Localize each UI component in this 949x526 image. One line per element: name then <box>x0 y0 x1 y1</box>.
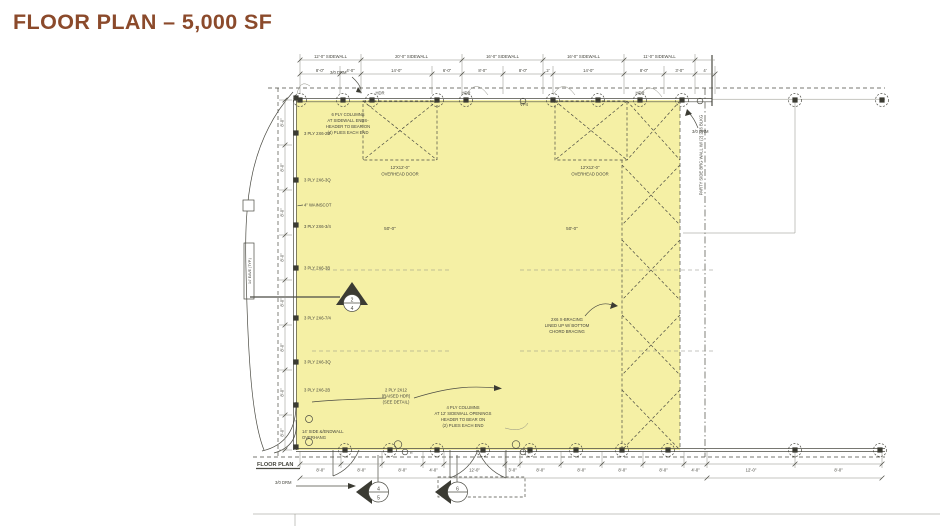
door-right-leader <box>689 113 698 128</box>
note-line: CHORD BRACING <box>549 329 585 334</box>
note-line: (RAISED HDR) <box>382 394 411 399</box>
callout: 3 PLY 2X6-3B <box>304 266 330 271</box>
dim-label-top-upper: 12'-0" SIDEWALL <box>314 54 348 59</box>
bay-label-1: 50'-0" <box>384 226 396 231</box>
callout: 3 PLY 2X6-2B <box>304 388 330 393</box>
dim-label-left: 8'-0" <box>280 428 285 437</box>
dim-label-top-upper: 16'-0" SIDEWALL <box>486 54 520 59</box>
dim-label-bottom: 8'-0" <box>834 468 843 473</box>
dim-label-top: 14'-0" <box>391 68 402 73</box>
callout: 3 PLY 2X6-7/4 <box>304 316 332 321</box>
corner-post-bottomleft <box>293 444 298 449</box>
dim-label-top: 2' <box>546 68 549 73</box>
dim-label-left: 8'-0" <box>280 298 285 307</box>
dim-label-top: 8'-0" <box>640 68 649 73</box>
left-wall-post <box>293 265 298 270</box>
fixture-r-label: R <box>410 451 413 455</box>
dim-label-top-upper: 16'-0" SIDEWALL <box>567 54 601 59</box>
callout: 3 PLY 2X6-3Q <box>304 178 331 183</box>
left-wall-post <box>293 222 298 227</box>
page-title: FLOOR PLAN – 5,000 SF <box>13 10 272 35</box>
note-line: 14' SIDE &/ENDWALL <box>302 429 344 434</box>
eave-label: 14' EAVE (TYP.) <box>248 258 252 284</box>
column-post <box>665 447 670 452</box>
dim-label-bottom: 3'-0" <box>508 468 517 473</box>
fixture-r-label: R <box>528 451 531 455</box>
note-line: (2) PLIES EACH END <box>443 423 484 428</box>
dim-label-bottom: 4'-0" <box>691 468 700 473</box>
dim-label-top: 14'-0" <box>583 68 594 73</box>
left-wall-post <box>293 402 298 407</box>
dim-label-left: 8'-0" <box>280 253 285 262</box>
dim-label-top: 4'-0" <box>346 68 355 73</box>
vp-label: VP4 <box>520 102 529 107</box>
note-six-ply: 6 PLY COLUMNS AT SIDEWALL ENDS- HEADER T… <box>326 112 370 135</box>
walk-door <box>333 450 359 476</box>
column-post <box>297 97 302 102</box>
column-post <box>573 447 578 452</box>
dim-label-top-upper: 20'-0" SIDEWALL <box>395 54 429 59</box>
left-wall-post <box>293 177 298 182</box>
column-post <box>679 97 684 102</box>
note-line: 4 PLY COLUMNS <box>446 405 479 410</box>
fixture-circle <box>402 449 408 455</box>
left-wall-post <box>293 315 298 320</box>
dim-label-left: 8'-0" <box>280 118 285 127</box>
detail-box <box>243 200 254 211</box>
dim-label-bottom: 8'-0" <box>536 468 545 473</box>
floor-plan-page: FLOOR PLAN – 5,000 SF <box>0 0 949 526</box>
highlighted-unit-area <box>296 100 680 450</box>
dim-label-bottom: 12'-0" <box>469 468 480 473</box>
column-post <box>480 447 485 452</box>
dim-label-bottom: 12'-0" <box>746 468 757 473</box>
section-marker-c: 6 <box>435 455 468 504</box>
door2-label: OVERHEAD DOOR <box>571 172 608 177</box>
column-post <box>342 447 347 452</box>
callout: 3 PLY 2X6-2B <box>304 131 330 136</box>
dim-label-bottom: 8'-0" <box>577 468 586 473</box>
door-bottom-label: 3/0 DRM <box>275 480 292 485</box>
note-line: 2X6 X-BRACING <box>551 317 583 322</box>
note-line: AT SIDEWALL ENDS- <box>327 118 369 123</box>
dim-label-top-upper: 11'-0" SIDEWALL <box>643 54 676 59</box>
column-post <box>550 97 555 102</box>
fixture-circle <box>520 449 526 455</box>
marker-number: 6 <box>456 487 459 493</box>
column-post <box>434 447 439 452</box>
column-post <box>340 97 345 102</box>
floor-plan-drawing: 12'X12'-0" OVERHEAD DOOR 12'X12'-0" OVER… <box>0 0 949 526</box>
callout: 3 PLY 2X6-3Q <box>304 360 331 365</box>
marker-number: 4 <box>377 487 380 493</box>
dim-label-top: 8'-0" <box>519 68 528 73</box>
note-line: LINED UP W/ BOTTOM <box>545 323 590 328</box>
dim-label-bottom: 8'-0" <box>398 468 407 473</box>
callout: 4" WAINSCOT <box>304 203 332 208</box>
dim-label-left: 8'-0" <box>280 388 285 397</box>
dim-label-top: 8'-0" <box>316 68 325 73</box>
note-line: HEADER TO BEAR ON <box>441 417 485 422</box>
dim-label-left: 8'-0" <box>280 343 285 352</box>
marker-number: 2 <box>351 298 354 304</box>
bay-label-2: 50'-0" <box>566 226 578 231</box>
column-post <box>387 447 392 452</box>
sheet-label: FLOOR PLAN <box>257 462 293 468</box>
column-post <box>463 97 468 102</box>
dim-label-left: 8'-0" <box>280 163 285 172</box>
note-line: OVERHANG <box>302 435 326 440</box>
left-wall-post <box>293 130 298 135</box>
note-line: 6 PLY COLUMNS <box>331 112 364 117</box>
arrowhead <box>348 483 356 489</box>
dim-label-top: 4' <box>703 68 706 73</box>
left-wall-post <box>293 359 298 364</box>
door1-label: OVERHEAD DOOR <box>381 172 418 177</box>
marker-number: 4 <box>351 306 354 312</box>
column-post <box>877 447 882 452</box>
column-post <box>792 97 797 102</box>
small-circle <box>697 98 703 104</box>
hdr-label: HDR <box>375 91 384 96</box>
column-post <box>595 97 600 102</box>
column-post <box>879 97 884 102</box>
note-line: AT 12' SIDEWALL OPENINGS <box>435 411 492 416</box>
door1-size-label: 12'X12'-0" <box>391 165 410 170</box>
column-post <box>369 97 374 102</box>
note-line: HEADER TO BEAR ON <box>326 124 370 129</box>
column-post <box>792 447 797 452</box>
note-line: (SEE DETAIL) <box>383 400 410 405</box>
corner-curve-1 <box>262 402 296 451</box>
marker-number: 5 <box>377 496 380 502</box>
door2-size-label: 12'X12'-0" <box>581 165 600 170</box>
dim-label-bottom: 8'-0" <box>618 468 627 473</box>
column-post <box>637 97 642 102</box>
callout: 3 PLY 2X6-3/4 <box>304 224 332 229</box>
dim-label-bottom: 4'-0" <box>429 468 438 473</box>
party-wall-label: PARTY SIDE BRG WALL W/ (2) 2X6 BLKG <box>699 115 704 195</box>
note-line: (4) PLIES EACH END <box>328 130 369 135</box>
hook-curve <box>297 84 310 94</box>
dim-label-top: 6'-0" <box>443 68 452 73</box>
dim-label-top: 3'-0" <box>675 68 684 73</box>
door-swing-arc <box>333 450 359 476</box>
column-post <box>434 97 439 102</box>
dim-label-left: 8'-0" <box>280 208 285 217</box>
dim-label-bottom: 8'-0" <box>659 468 668 473</box>
dim-label-bottom: 8'-0" <box>316 468 325 473</box>
note-line: 2 PLY 2X12 <box>385 388 408 393</box>
dim-label-top: 8'-0" <box>478 68 487 73</box>
dim-label-bottom: 8'-0" <box>357 468 366 473</box>
